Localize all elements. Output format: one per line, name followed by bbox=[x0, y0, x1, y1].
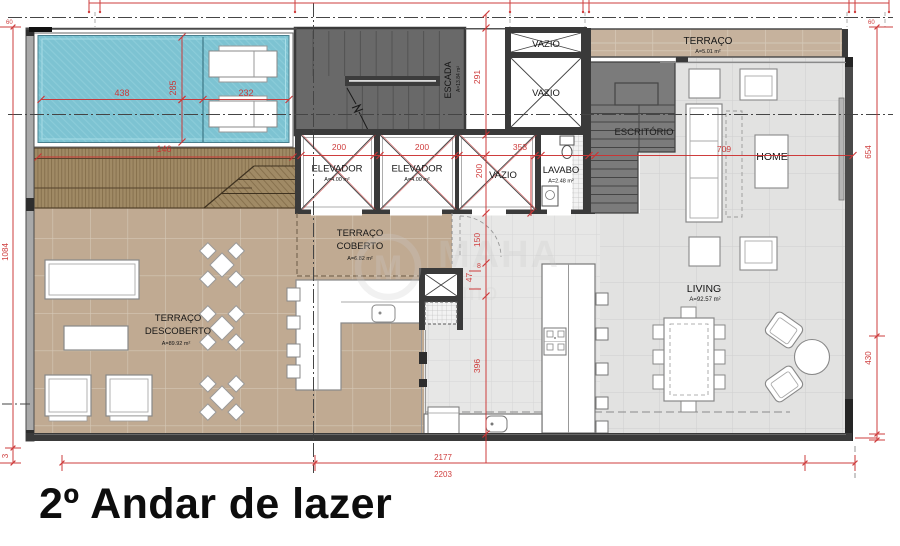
svg-text:A=4.00 m²: A=4.00 m² bbox=[404, 177, 430, 183]
svg-text:VAZIO: VAZIO bbox=[532, 88, 560, 99]
svg-text:146: 146 bbox=[156, 144, 171, 154]
svg-text:232: 232 bbox=[238, 88, 253, 98]
svg-text:200: 200 bbox=[332, 142, 346, 152]
svg-text:VAZIO: VAZIO bbox=[489, 170, 517, 181]
svg-text:60: 60 bbox=[868, 20, 875, 26]
svg-text:200: 200 bbox=[415, 142, 429, 152]
svg-text:3: 3 bbox=[1, 453, 10, 458]
svg-text:2203: 2203 bbox=[434, 470, 452, 479]
svg-text:A=92.57 m²: A=92.57 m² bbox=[689, 297, 720, 303]
svg-text:A=13.84 m²: A=13.84 m² bbox=[456, 66, 462, 92]
svg-text:353: 353 bbox=[513, 142, 527, 152]
svg-text:396: 396 bbox=[472, 359, 482, 373]
svg-text:LIVING: LIVING bbox=[687, 283, 721, 295]
svg-text:430: 430 bbox=[864, 351, 873, 365]
svg-text:ESCRITÓRIO: ESCRITÓRIO bbox=[614, 127, 673, 138]
svg-text:A=89.92 m²: A=89.92 m² bbox=[162, 341, 191, 347]
svg-text:ELEVADOR: ELEVADOR bbox=[311, 164, 362, 175]
svg-text:ESCADA: ESCADA bbox=[443, 61, 453, 98]
svg-text:8: 8 bbox=[477, 263, 481, 270]
svg-text:2177: 2177 bbox=[434, 453, 452, 462]
svg-text:A=2.48 m²: A=2.48 m² bbox=[548, 179, 574, 185]
svg-text:150: 150 bbox=[472, 233, 482, 247]
svg-text:TERRAÇO: TERRAÇO bbox=[155, 313, 201, 324]
svg-text:ELEVADOR: ELEVADOR bbox=[391, 164, 442, 175]
svg-text:MAHA: MAHA bbox=[438, 234, 560, 276]
svg-text:438: 438 bbox=[114, 88, 129, 98]
svg-text:200: 200 bbox=[474, 164, 484, 178]
svg-text:M: M bbox=[374, 249, 402, 287]
svg-text:1084: 1084 bbox=[1, 243, 10, 261]
svg-text:TERRAÇO: TERRAÇO bbox=[684, 36, 733, 47]
svg-text:LAVABO: LAVABO bbox=[543, 165, 580, 176]
svg-text:2º Andar de lazer: 2º Andar de lazer bbox=[39, 480, 392, 528]
svg-text:654: 654 bbox=[864, 145, 873, 159]
svg-text:A=4.00 m²: A=4.00 m² bbox=[324, 177, 350, 183]
svg-text:A=5.01 m²: A=5.01 m² bbox=[695, 49, 721, 55]
svg-text:60: 60 bbox=[6, 20, 13, 26]
svg-text:47: 47 bbox=[464, 273, 474, 283]
svg-text:709: 709 bbox=[717, 144, 731, 154]
svg-text:HOME: HOME bbox=[756, 151, 788, 163]
svg-text:285: 285 bbox=[168, 80, 178, 95]
svg-text:VAZIO: VAZIO bbox=[532, 39, 560, 50]
svg-text:DESCOBERTO: DESCOBERTO bbox=[145, 326, 211, 337]
svg-text:291: 291 bbox=[472, 70, 482, 84]
